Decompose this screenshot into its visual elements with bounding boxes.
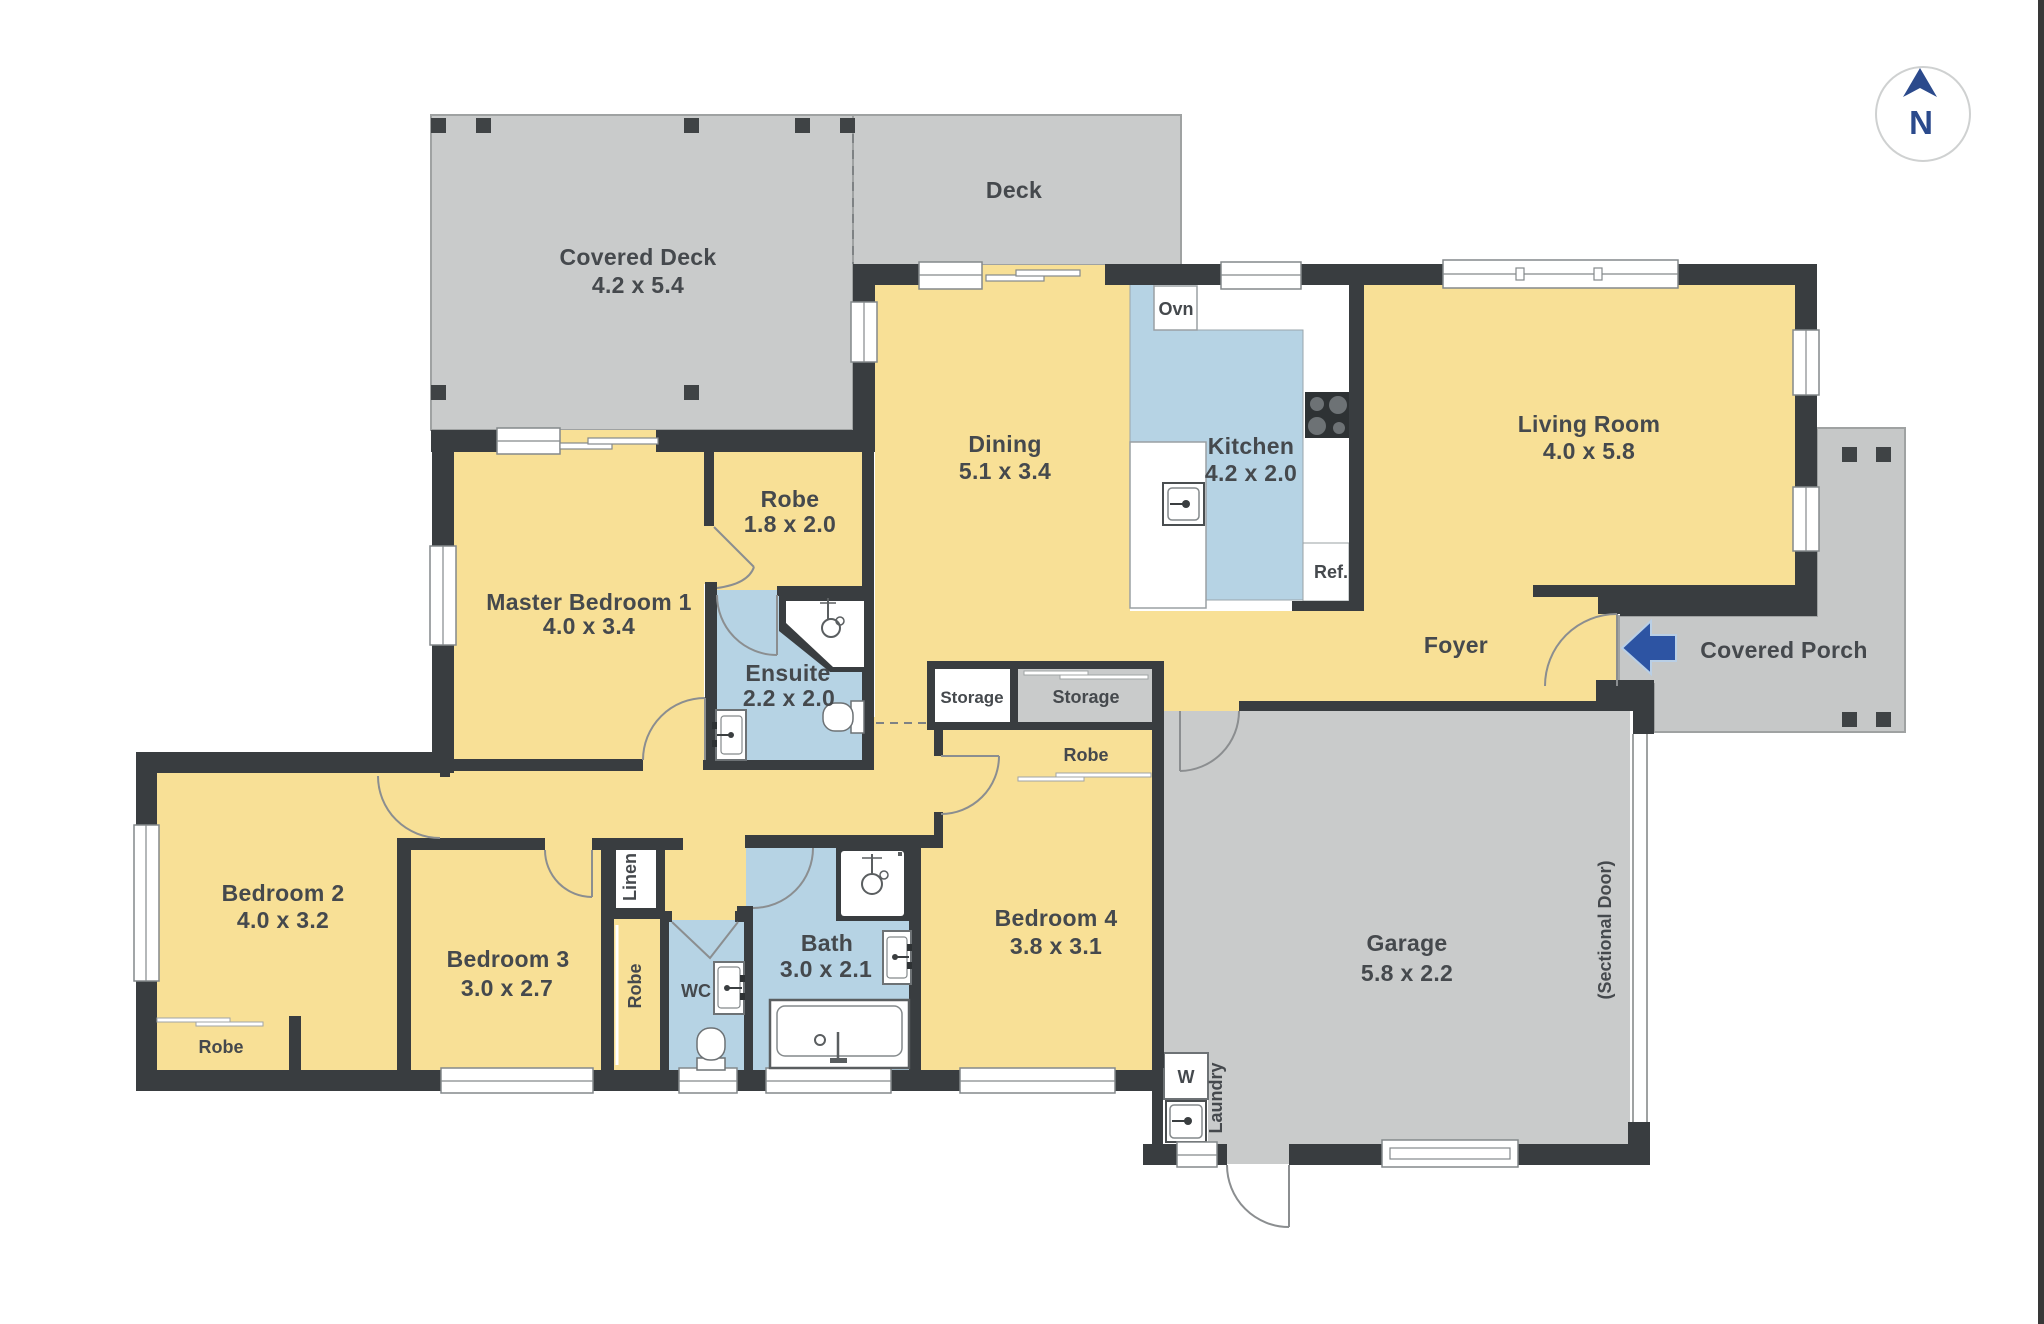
- svg-text:4.0 x 3.4: 4.0 x 3.4: [543, 613, 635, 639]
- svg-text:Master Bedroom 1: Master Bedroom 1: [486, 589, 691, 615]
- svg-text:Foyer: Foyer: [1424, 632, 1488, 658]
- svg-text:4.2 x 5.4: 4.2 x 5.4: [592, 272, 684, 298]
- svg-text:WC: WC: [681, 981, 711, 1001]
- svg-text:Ovn: Ovn: [1158, 299, 1193, 319]
- svg-text:1.8 x 2.0: 1.8 x 2.0: [744, 511, 836, 537]
- svg-text:Bath: Bath: [801, 930, 853, 956]
- svg-text:Bedroom 3: Bedroom 3: [447, 946, 570, 972]
- svg-text:Robe: Robe: [625, 964, 645, 1009]
- svg-text:W: W: [1178, 1067, 1195, 1087]
- svg-text:Storage: Storage: [1052, 687, 1119, 707]
- svg-text:Kitchen: Kitchen: [1208, 433, 1294, 459]
- svg-text:Ref.: Ref.: [1314, 562, 1348, 582]
- svg-text:Dining: Dining: [968, 431, 1041, 457]
- svg-text:4.0 x 5.8: 4.0 x 5.8: [1543, 438, 1635, 464]
- svg-text:Garage: Garage: [1366, 930, 1447, 956]
- svg-text:N: N: [1909, 104, 1933, 141]
- svg-text:5.1 x 3.4: 5.1 x 3.4: [959, 458, 1051, 484]
- svg-text:3.0 x 2.1: 3.0 x 2.1: [780, 956, 872, 982]
- svg-text:Deck: Deck: [986, 177, 1042, 203]
- svg-text:Covered Porch: Covered Porch: [1700, 637, 1868, 663]
- svg-text:(Sectional Door): (Sectional Door): [1595, 860, 1615, 999]
- svg-text:Robe: Robe: [1064, 745, 1109, 765]
- svg-text:Laundry: Laundry: [1206, 1062, 1226, 1133]
- svg-text:4.2 x 2.0: 4.2 x 2.0: [1205, 460, 1297, 486]
- svg-text:Robe: Robe: [199, 1037, 244, 1057]
- svg-text:Bedroom 4: Bedroom 4: [995, 905, 1118, 931]
- svg-text:2.2 x 2.0: 2.2 x 2.0: [743, 685, 835, 711]
- svg-text:3.0 x 2.7: 3.0 x 2.7: [461, 975, 553, 1001]
- svg-text:Storage: Storage: [940, 688, 1003, 707]
- svg-text:3.8 x 3.1: 3.8 x 3.1: [1010, 933, 1102, 959]
- svg-text:5.8 x 2.2: 5.8 x 2.2: [1361, 960, 1453, 986]
- svg-text:Living Room: Living Room: [1518, 411, 1661, 437]
- svg-text:Covered Deck: Covered Deck: [559, 244, 716, 270]
- svg-text:Linen: Linen: [620, 853, 640, 901]
- svg-text:Robe: Robe: [761, 486, 820, 512]
- svg-text:Ensuite: Ensuite: [745, 660, 830, 686]
- svg-text:Bedroom 2: Bedroom 2: [222, 880, 345, 906]
- svg-text:4.0 x 3.2: 4.0 x 3.2: [237, 907, 329, 933]
